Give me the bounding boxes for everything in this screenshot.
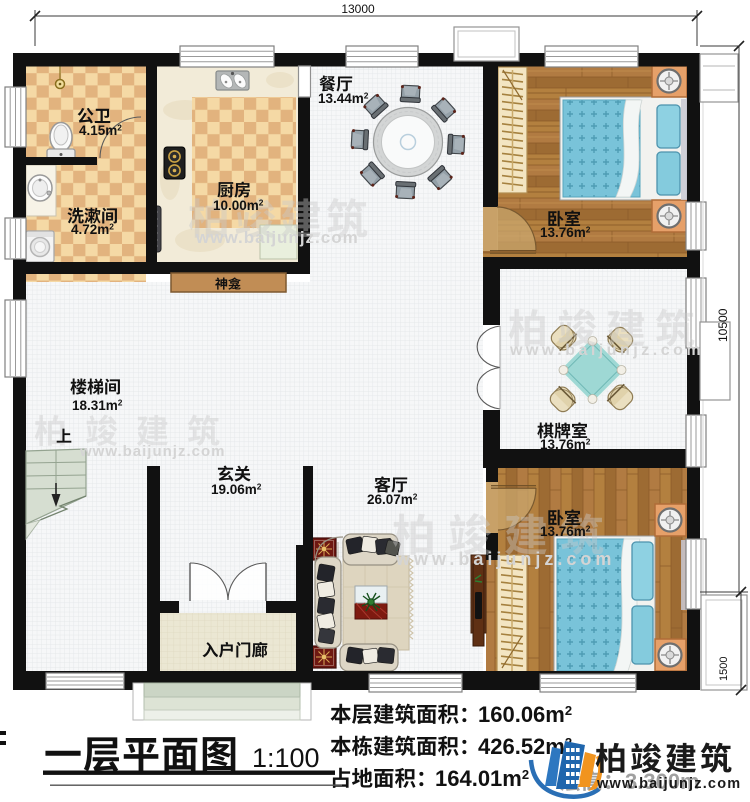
svg-text:www.baijunjz.com: www.baijunjz.com — [509, 342, 704, 359]
svg-text:www.baijunjz.com: www.baijunjz.com — [395, 549, 615, 569]
svg-text:www.baijunjz.com: www.baijunjz.com — [195, 228, 359, 247]
svg-text:160.06m2: 160.06m2 — [478, 702, 572, 727]
svg-text:13.76m2: 13.76m2 — [540, 523, 591, 539]
svg-text:13.76m2: 13.76m2 — [540, 224, 591, 240]
svg-text:164.01m2: 164.01m2 — [435, 766, 529, 791]
svg-text:4.15m2: 4.15m2 — [79, 122, 122, 138]
svg-text:10.00m2: 10.00m2 — [213, 197, 264, 213]
svg-text:19.06m2: 19.06m2 — [211, 481, 262, 497]
svg-text:13.76m2: 13.76m2 — [540, 436, 591, 452]
svg-text:www.baijunjz.com: www.baijunjz.com — [79, 443, 225, 460]
svg-text:4.72m2: 4.72m2 — [71, 221, 114, 237]
svg-text:18.31m2: 18.31m2 — [72, 397, 123, 413]
svg-text:26.07m2: 26.07m2 — [367, 491, 418, 507]
svg-text:www.baijunjz.com: www.baijunjz.com — [596, 776, 741, 792]
svg-text:1:100: 1:100 — [252, 743, 320, 773]
svg-text:1500: 1500 — [718, 657, 730, 681]
svg-text:13.44m2: 13.44m2 — [318, 90, 369, 106]
svg-text:10500: 10500 — [716, 308, 730, 342]
svg-text:13000: 13000 — [341, 2, 375, 16]
